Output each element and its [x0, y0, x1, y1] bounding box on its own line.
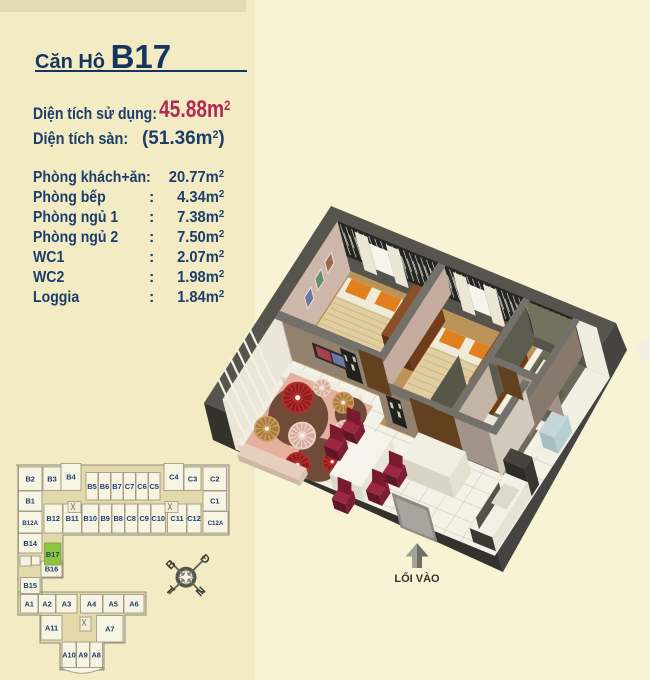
svg-text:C12A: C12A: [208, 520, 224, 527]
svg-text:A9: A9: [78, 650, 87, 659]
svg-text:A2: A2: [42, 599, 51, 608]
svg-text:B1: B1: [25, 497, 34, 506]
svg-text:B4: B4: [66, 473, 76, 482]
svg-text:B11: B11: [66, 514, 79, 523]
svg-text:B3: B3: [47, 474, 56, 483]
svg-text:B14: B14: [23, 539, 37, 548]
svg-text:B15: B15: [23, 581, 37, 590]
svg-text:B10: B10: [83, 514, 97, 523]
svg-text:C9: C9: [139, 514, 148, 523]
svg-text:C7: C7: [125, 482, 134, 491]
svg-text:A5: A5: [108, 599, 117, 608]
svg-text:B: B: [164, 558, 178, 572]
svg-text:B8: B8: [113, 514, 122, 523]
svg-text:B2: B2: [25, 474, 34, 483]
svg-text:T: T: [163, 584, 176, 597]
svg-text:B17: B17: [46, 550, 60, 559]
svg-text:B16: B16: [45, 565, 59, 574]
svg-text:A7: A7: [105, 624, 114, 633]
svg-text:C10: C10: [151, 514, 165, 523]
svg-text:A11: A11: [45, 623, 58, 632]
svg-text:A3: A3: [62, 599, 71, 608]
svg-text:A10: A10: [62, 650, 76, 659]
svg-text:C3: C3: [188, 474, 197, 483]
svg-text:C1: C1: [210, 497, 219, 506]
svg-text:A6: A6: [129, 599, 138, 608]
svg-text:B12A: B12A: [22, 520, 38, 527]
svg-text:C2: C2: [210, 474, 219, 483]
svg-text:C4: C4: [169, 473, 179, 482]
svg-text:B5: B5: [87, 482, 96, 491]
svg-text:C6: C6: [137, 482, 146, 491]
svg-text:A8: A8: [91, 650, 100, 659]
svg-text:B12: B12: [46, 514, 60, 523]
svg-text:LỐI VÀO: LỐI VÀO: [394, 571, 440, 585]
svg-text:B9: B9: [100, 514, 109, 523]
svg-text:C11: C11: [170, 514, 183, 523]
svg-text:C5: C5: [149, 482, 158, 491]
svg-text:B7: B7: [112, 482, 121, 491]
svg-text:A1: A1: [24, 599, 33, 608]
svg-text:B6: B6: [100, 482, 109, 491]
svg-text:C12: C12: [187, 514, 201, 523]
svg-text:A4: A4: [87, 599, 97, 608]
svg-text:C8: C8: [126, 514, 135, 523]
